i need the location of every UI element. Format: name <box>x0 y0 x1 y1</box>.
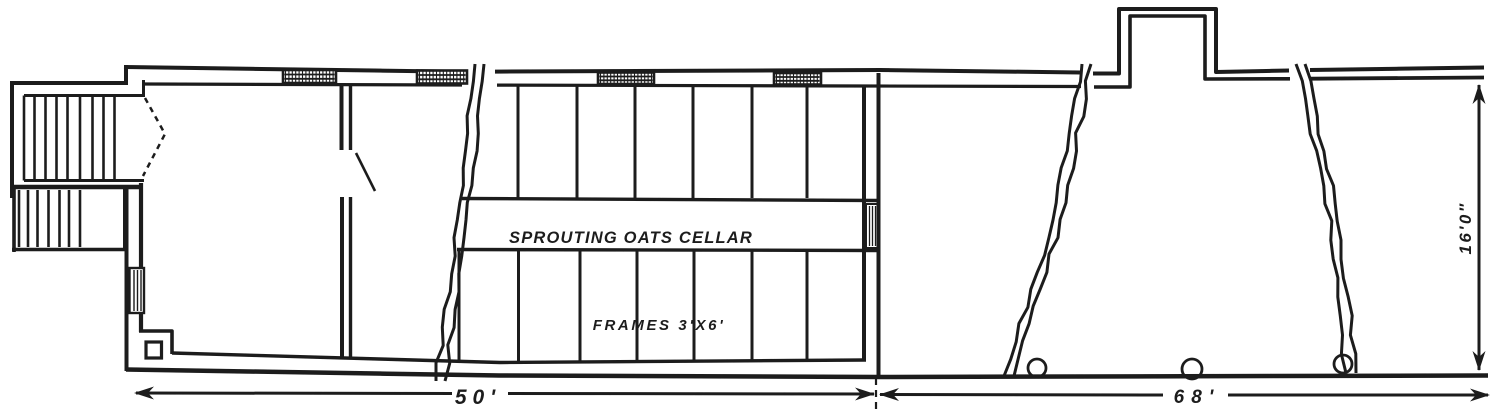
svg-text:16'0″: 16'0″ <box>1456 201 1475 254</box>
svg-text:68': 68' <box>1174 387 1221 408</box>
svg-text:FRAMES 3'X6': FRAMES 3'X6' <box>593 317 726 334</box>
svg-text:SPROUTING OATS CELLAR: SPROUTING OATS CELLAR <box>509 229 753 247</box>
svg-text:50': 50' <box>455 386 501 409</box>
